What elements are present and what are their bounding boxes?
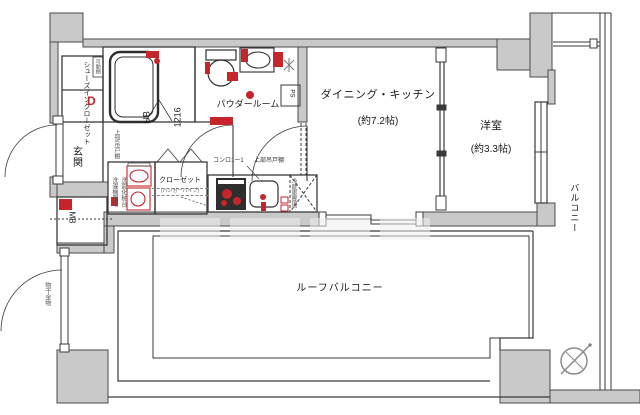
balcony-rail xyxy=(552,13,611,390)
label-dining-kitchen: ダイニング・キッチン xyxy=(308,89,448,102)
label-door-mark: D xyxy=(87,95,96,109)
label-western-room: 洋室 xyxy=(444,120,538,133)
label-closet: クローゼット xyxy=(153,177,207,185)
kitchen-leader-line xyxy=(247,166,259,179)
floor-plan: ダイニング・キッチン (約7.2帖) 洋室 (約3.3帖) ルーフバルコニー バ… xyxy=(0,0,640,415)
roof-balcony-door xyxy=(1,248,69,352)
stove-icon xyxy=(216,178,246,210)
label-kitchen-code: コンロ1ー1 xyxy=(213,158,244,165)
laundry-fixtures xyxy=(111,163,151,210)
label-ub-line2: 1216 xyxy=(172,95,182,139)
roof-balcony-outline xyxy=(108,231,550,397)
entrance-door xyxy=(5,116,63,184)
label-powder-room: パウダールーム xyxy=(202,99,294,109)
label-western-room-area: (約3.3帖) xyxy=(444,144,538,156)
label-shelf-note: 可動棚 xyxy=(94,59,100,74)
washbasin-icon xyxy=(240,48,274,72)
label-shoes-in-closet: シューズインクローゼット xyxy=(66,61,90,119)
sink-icon xyxy=(250,181,288,211)
label-closet-note: (ハンガーパイプ) xyxy=(152,188,208,196)
toilet-icon xyxy=(205,50,238,86)
label-vanity: 洗面化粧台 xyxy=(119,177,126,207)
compass-icon xyxy=(561,343,592,374)
label-upper-cabinet: 上部吊戸棚 xyxy=(112,129,119,159)
label-ub-line1: UB xyxy=(141,95,151,139)
label-roof-balcony: ルーフバルコニー xyxy=(255,283,425,295)
label-entrance: 玄関 xyxy=(70,146,82,168)
label-laundry-space: 洗濯機置場 xyxy=(110,177,117,207)
label-fridge-space: 冷蔵庫置場 xyxy=(289,178,296,208)
structural-walls xyxy=(50,13,640,403)
label-kitchen-cabinet: 上部吊戸棚 xyxy=(254,158,284,165)
label-balcony: バルコニー xyxy=(569,183,579,233)
label-pole: 物干金物 xyxy=(43,282,50,306)
fan-icon xyxy=(284,58,294,72)
label-meter-box: MB xyxy=(67,208,76,228)
label-pipe-space: PS xyxy=(288,85,295,101)
label-unit-bath: UB 1216 xyxy=(121,95,204,139)
label-dining-kitchen-area: (約7.2帖) xyxy=(308,116,448,128)
watermark xyxy=(160,218,430,240)
